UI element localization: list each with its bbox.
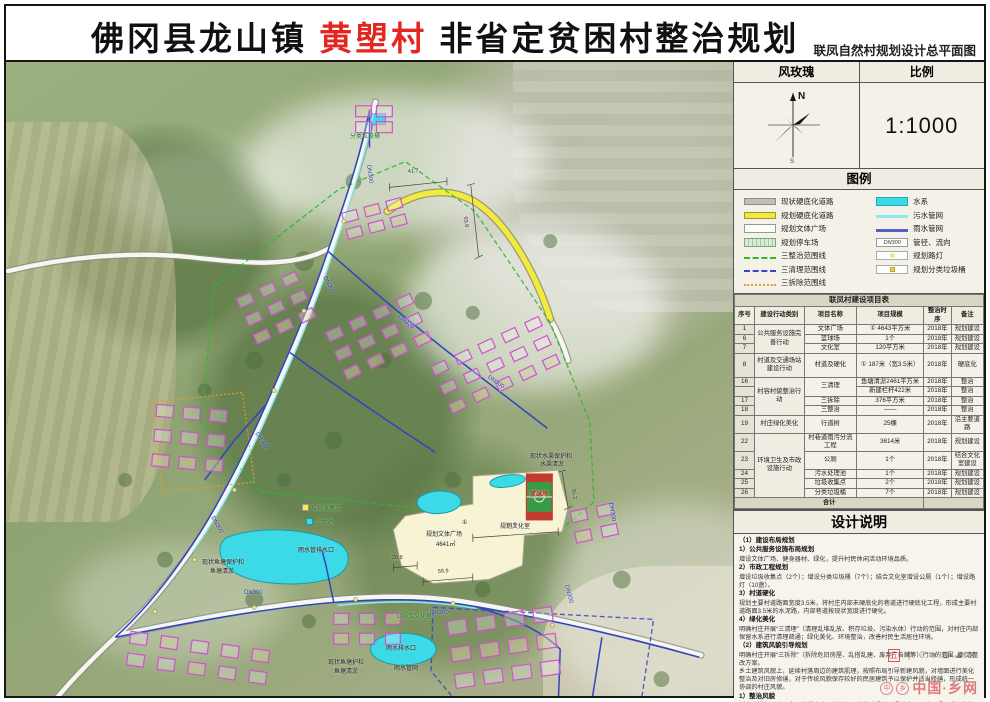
cell-note: 规划建设 [951,334,983,344]
cell-seq: 7 [735,344,755,354]
cell-category: 村庄绿化美化 [754,415,804,433]
legend-item-label: 三整治范围线 [781,250,826,261]
note-line: 明确村庄开展“三清理”（清理乱堆乱放、积存垃圾、污染水体）行动的范围，对村庄内部… [739,626,979,642]
map-label: DN300 [607,502,616,521]
scale-value: 1:1000 [885,113,958,139]
rain-swatch [876,229,908,232]
lamp-marker [890,253,895,258]
cell-project-name: 三拆除 [804,396,856,406]
cell-seq: 19 [735,415,755,433]
dimension-label: 35.2 [569,488,576,500]
pd-marker-icon [306,518,313,525]
map-label: 4641㎡ [436,542,455,548]
cell-time: 2018年 [924,353,951,377]
table-total-row: 合计 [735,498,984,509]
legend-item: 三整治范围线 [744,250,876,261]
legend-item-label: 现状硬底化道路 [781,196,834,207]
note-line: 增设垃圾收集点（2个）；增设分类垃圾桶（7个）；结合文化室增设公厕（1个）；增设… [739,574,979,590]
cell-note: 硬底化 [951,353,983,377]
cell-scale: 2个 [856,479,923,489]
scale-cell: 比例 1:1000 [859,62,985,168]
svg-text:S: S [790,159,794,165]
cell-scale: 25棵 [856,415,923,433]
cell-seq: 17 [735,396,755,406]
windrose-body: N S [734,83,859,168]
map-label: DN300 [244,590,263,596]
dash_green-swatch [744,257,776,259]
cell-time: 2018年 [924,433,951,451]
cell-time: 2018年 [924,396,951,406]
cell-note: 规划建设 [951,344,983,354]
map-label: 现状鱼塘保护和 [202,560,244,566]
legend-item: 规划硬底化道路 [744,210,876,221]
plaza-swatch [744,224,776,233]
cell-scale: 鱼塘清淤2461平方米 [856,377,923,387]
legend-item-label: 规划停车场 [781,237,819,248]
map-label: 鱼塘清淤 [334,669,358,675]
cell-time: 2018年 [924,344,951,354]
cell-category: 公共服务设施完善行动 [754,325,804,354]
table-row: 8村道及交通场站建设行动村道及硬化① 187米（宽3.5米）2018年硬底化 [735,353,984,377]
cell-time: 2018年 [924,479,951,489]
column-header: 备注 [951,307,983,325]
watermark-icon: ⚒ [968,650,976,661]
cell-seq: 23 [735,451,755,469]
map-label: DN300 [254,431,270,450]
bin-marker [890,267,895,272]
legend-item-label: 水系 [913,196,928,207]
cell-scale: ① 187米（宽3.5米） [856,353,923,377]
north-letter: N [798,91,805,102]
cell-seq: 24 [735,469,755,479]
title-prefix: 佛冈县龙山镇 [91,20,319,57]
table-row: 1公共服务设施完善行动文体广场① 4643平方米2018年规划建设 [735,325,984,335]
map-label: 雨水管排水口 [298,548,334,554]
seal-icon: 乡 [896,682,909,695]
seal-icon: 中 [880,682,893,695]
sheet-subtitle: 联凤自然村规划设计总平面图 [813,40,976,59]
cell-project-name: 污水处理池 [804,469,856,479]
legend-item-label: 规划分类垃圾桶 [913,264,966,275]
cell-note: 结合文化室建设 [951,451,983,469]
cell-time: 2018年 [924,469,951,479]
cell-seq: 16 [735,377,755,387]
cell-note: 整治 [951,396,983,406]
map-label: 篮球场 [530,492,548,498]
watermark-icon-strip: 五中☾∘⊞♟⚒ [888,649,976,662]
cell-seq: 8 [735,353,755,377]
map-label: 规划文体广场 [426,532,462,538]
legend-item-label: 雨水管网 [913,223,943,234]
column-header: 序号 [735,307,755,325]
map-label: 现状鱼塘护栏 [328,660,364,666]
map-label: 污水池 [306,518,333,526]
legend-item: 规划停车场 [744,237,876,248]
map-label: 鱼塘清淤 [210,569,234,575]
bin-marker-icon [302,504,309,511]
map-label: 现状水渠保护和 [530,454,572,460]
dimension-label: 41.7 [408,169,419,176]
legend-item-label: 规划硬底化道路 [781,210,834,221]
watermark-icon: ∘ [932,650,938,661]
legend: 现状硬底化道路规划硬底化道路规划文体广场规划停车场三整治范围线三清理范围线三拆除… [734,190,984,294]
bin-swatch [876,265,908,274]
cell-project-name: 公厕 [804,451,856,469]
windrose-scale-row: 风玫瑰 N S [734,62,984,169]
cell-scale: 120平方米 [856,344,923,354]
sheet-frame: 佛冈县龙山镇 黄塱村 非省定贫困村整治规划 联凤自然村规划设计总平面图 [4,4,986,698]
sheet-content: 分类垃圾桶DN300DN300DN300DN300DN300DN300DN300… [6,62,984,696]
cell-project-name: 文化室 [804,344,856,354]
legend-item-label: 规划路灯 [913,250,943,261]
cell-note: 规划建设 [951,488,983,498]
map-label: DN300 [209,516,224,535]
cell-note: 整治 [951,406,983,416]
map-label: DN300 [430,610,449,616]
cell-scale: —— [856,406,923,416]
cell-seq [735,387,755,397]
map-label: 公厕及文化室 [396,614,432,620]
cell-seq: 22 [735,433,755,451]
cell-time: 2018年 [924,325,951,335]
note-line: 2）市政工程规划 [739,564,979,572]
watermark-icon: ⊞ [942,650,950,661]
cell-seq: 6 [735,334,755,344]
column-header: 建设行动类别 [754,307,804,325]
title-suffix: 非省定贫困村整治规划 [427,20,799,57]
cell-time: 2018年 [924,488,951,498]
map-label: ① [462,520,467,526]
legend-item: 规划文体广场 [744,223,876,234]
project-table-header-row: 序号建设行动类别项目名称项目规模整治时序备注 [735,307,984,325]
table-row: 22环境卫生及市政设施行动村巷道雨污分流工程3614米2018年规划建设 [735,433,984,451]
cell-project-name: 垃圾收集点 [804,479,856,489]
cell-time: 2018年 [924,451,951,469]
legend-column-left: 现状硬底化道路规划硬底化道路规划文体广场规划停车场三整治范围线三清理范围线三拆除… [744,196,876,289]
cell-category: 村容村貌整治行动 [754,377,804,415]
cell-project-name: 分类垃圾桶 [804,488,856,498]
project-table: 联凤村建设项目表 序号建设行动类别项目名称项目规模整治时序备注 1公共服务设施完… [734,294,984,509]
map-labels: 分类垃圾桶DN300DN300DN300DN300DN300DN300DN300… [6,62,733,696]
legend-header: 图例 [734,169,984,190]
column-header: 项目名称 [804,307,856,325]
map-label: 雨水排水口 [386,646,416,652]
note-line: 4）绿化美化 [739,616,979,624]
site-plan-map: 分类垃圾桶DN300DN300DN300DN300DN300DN300DN300… [6,62,733,696]
cell-seq: 26 [735,488,755,498]
cell-project-name: 三整治 [804,406,856,416]
cell-time: 2018年 [924,406,951,416]
map-label: DN300 [321,276,336,295]
watermark-icon: 五 [888,649,900,662]
legend-item-label: 三清理范围线 [781,264,826,275]
note-line: 1）公共服务设施布局规划 [739,546,979,554]
map-label: DN300 [365,165,374,184]
note-line: 规划主要村道路面宽度3.5米，将村庄内部未硬底化的巷道进行硬底化工程，形成主要村… [739,600,979,616]
legend-item: 现状硬底化道路 [744,196,876,207]
cell-note: 整治 [951,377,983,387]
cell-category: 村道及交通场站建设行动 [754,353,804,377]
road_existing-swatch [744,198,776,205]
cell-project-name: 三清理 [804,377,856,396]
cell-scale: 1个 [856,451,923,469]
legend-item-label: 污水管网 [913,210,943,221]
table-row: 16村容村貌整治行动三清理鱼塘清淤2461平方米2018年整治 [735,377,984,387]
column-header: 整治时序 [924,307,951,325]
cell-scale: 3614米 [856,433,923,451]
design-notes-header: 设计说明 [734,511,984,534]
map-label: 水渠清淤 [540,462,564,468]
title-village-name: 黄塱村 [319,20,427,57]
map-label: 分类垃圾桶 [350,134,380,140]
dash_orange-swatch [744,284,776,286]
water-swatch [876,197,908,206]
dimension-label: 93.8 [461,216,468,227]
cell-scale: 7个 [856,488,923,498]
cell-project-name: 篮球场 [804,334,856,344]
design-notes: （1）建设布局规划1）公共服务设施布局规划增设文体广场、健身器材、绿化，提升村民… [734,534,984,702]
cell-seq: 18 [735,406,755,416]
lamp-swatch [876,251,908,260]
dash_blue-swatch [744,270,776,272]
dimension-label: 70.6 [506,523,517,529]
dn-swatch: DN300 [876,238,908,247]
cell-time: 2018年 [924,415,951,433]
cell-scale: 1个 [856,334,923,344]
table-row: 19村庄绿化美化行道树25棵2018年沿主要道路 [735,415,984,433]
dimension-label: 20.8 [392,556,403,562]
map-label: DN300 [563,584,574,604]
cell-seq: 25 [735,479,755,489]
windrose-cell: 风玫瑰 N S [734,62,859,168]
cell-note: 规划建设 [951,469,983,479]
scale-header: 比例 [860,62,985,83]
legend-item: DN300管径、流向 [876,237,980,248]
legend-item-label: 三拆除范围线 [781,277,826,288]
legend-column-right: 水系污水管网雨水管网DN300管径、流向规划路灯规划分类垃圾桶 [876,196,980,289]
sheet-header: 佛冈县龙山镇 黄塱村 非省定贫困村整治规划 联凤自然村规划设计总平面图 [6,6,984,62]
sheet-title: 佛冈县龙山镇 黄塱村 非省定贫困村整治规划 [91,12,799,60]
map-label: 雨水管网 [394,666,418,672]
sewage-swatch [876,215,908,218]
watermark-icon: 中 [905,649,914,662]
watermark-icon: ☾ [919,650,927,661]
note-line: 增设文体广场、健身器材、绿化，提升村民休闲活动环境品质。 [739,556,979,564]
map-label: 垃圾收集点 [302,504,341,512]
cell-scale: 新建栏杆422米 [856,387,923,397]
cell-note: 整治 [951,387,983,397]
cell-time: 2018年 [924,377,951,387]
cell-note: 规划建设 [951,433,983,451]
legend-item-label: 管径、流向 [913,237,951,248]
cell-category: 环境卫生及市政设施行动 [754,433,804,498]
total-label: 合计 [735,498,924,509]
cell-time: 2018年 [924,387,951,397]
legend-item-label: 规划文体广场 [781,223,826,234]
cell-note: 规划建设 [951,325,983,335]
cell-scale: 376平方米 [856,396,923,406]
legend-item: 水系 [876,196,980,207]
plan-sheet: 佛冈县龙山镇 黄塱村 非省定贫困村整治规划 联凤自然村规划设计总平面图 [0,0,990,702]
legend-item: 雨水管网 [876,223,980,234]
cell-project-name: 行道树 [804,415,856,433]
legend-item: 三拆除范围线 [744,277,876,288]
parking-swatch [744,238,776,247]
cell-note: 沿主要道路 [951,415,983,433]
map-label: DN300 [396,315,415,331]
road_planned-swatch [744,212,776,219]
legend-item: 规划分类垃圾桶 [876,264,980,275]
windrose-header: 风玫瑰 [734,62,859,83]
map-label: DN300 [486,375,505,391]
cell-note: 规划建设 [951,479,983,489]
cell-project-name: 文体广场 [804,325,856,335]
cell-project-name: 村巷道雨污分流工程 [804,433,856,451]
note-line: （1）建设布局规划 [739,537,979,545]
watermark-icon: ♟ [955,650,963,661]
note-line: 3）村道硬化 [739,590,979,598]
legend-item: 污水管网 [876,210,980,221]
cell-time: 2018年 [924,334,951,344]
total-empty [924,498,984,509]
cell-seq: 1 [735,325,755,335]
project-table-title: 联凤村建设项目表 [735,295,984,307]
north-compass-icon: N S [760,87,832,165]
cell-scale: ① 4643平方米 [856,325,923,335]
watermark-logo: 中 乡 中国·乡网 [880,678,978,698]
cell-scale: 1个 [856,469,923,479]
dimension-label: 56.9 [438,569,449,575]
info-panel: 风玫瑰 N S [733,62,984,696]
cell-project-name: 村道及硬化 [804,353,856,377]
column-header: 项目规模 [856,307,923,325]
legend-item: 规划路灯 [876,250,980,261]
watermark-logo-text: 中国·乡网 [912,678,978,698]
project-table-wrap: 联凤村建设项目表 序号建设行动类别项目名称项目规模整治时序备注 1公共服务设施完… [734,294,984,510]
legend-item: 三清理范围线 [744,264,876,275]
